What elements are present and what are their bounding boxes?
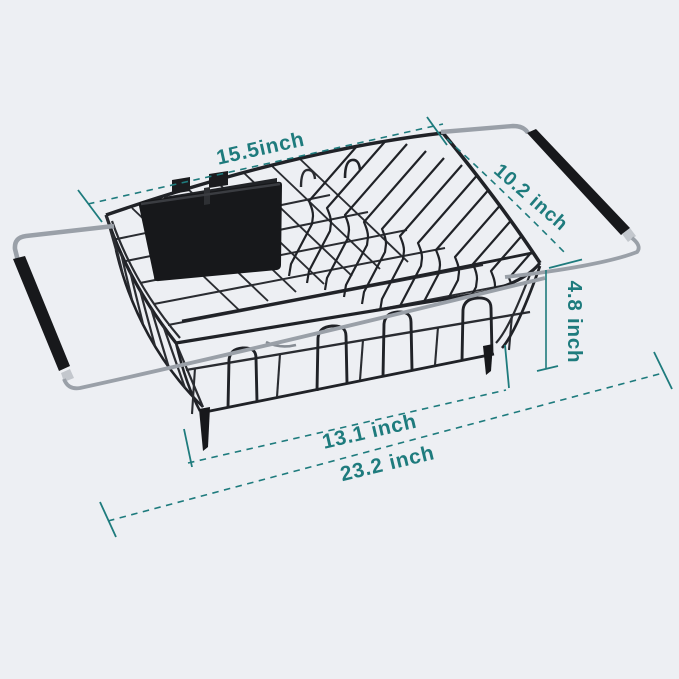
svg-text:4.8 inch: 4.8 inch (563, 281, 586, 364)
